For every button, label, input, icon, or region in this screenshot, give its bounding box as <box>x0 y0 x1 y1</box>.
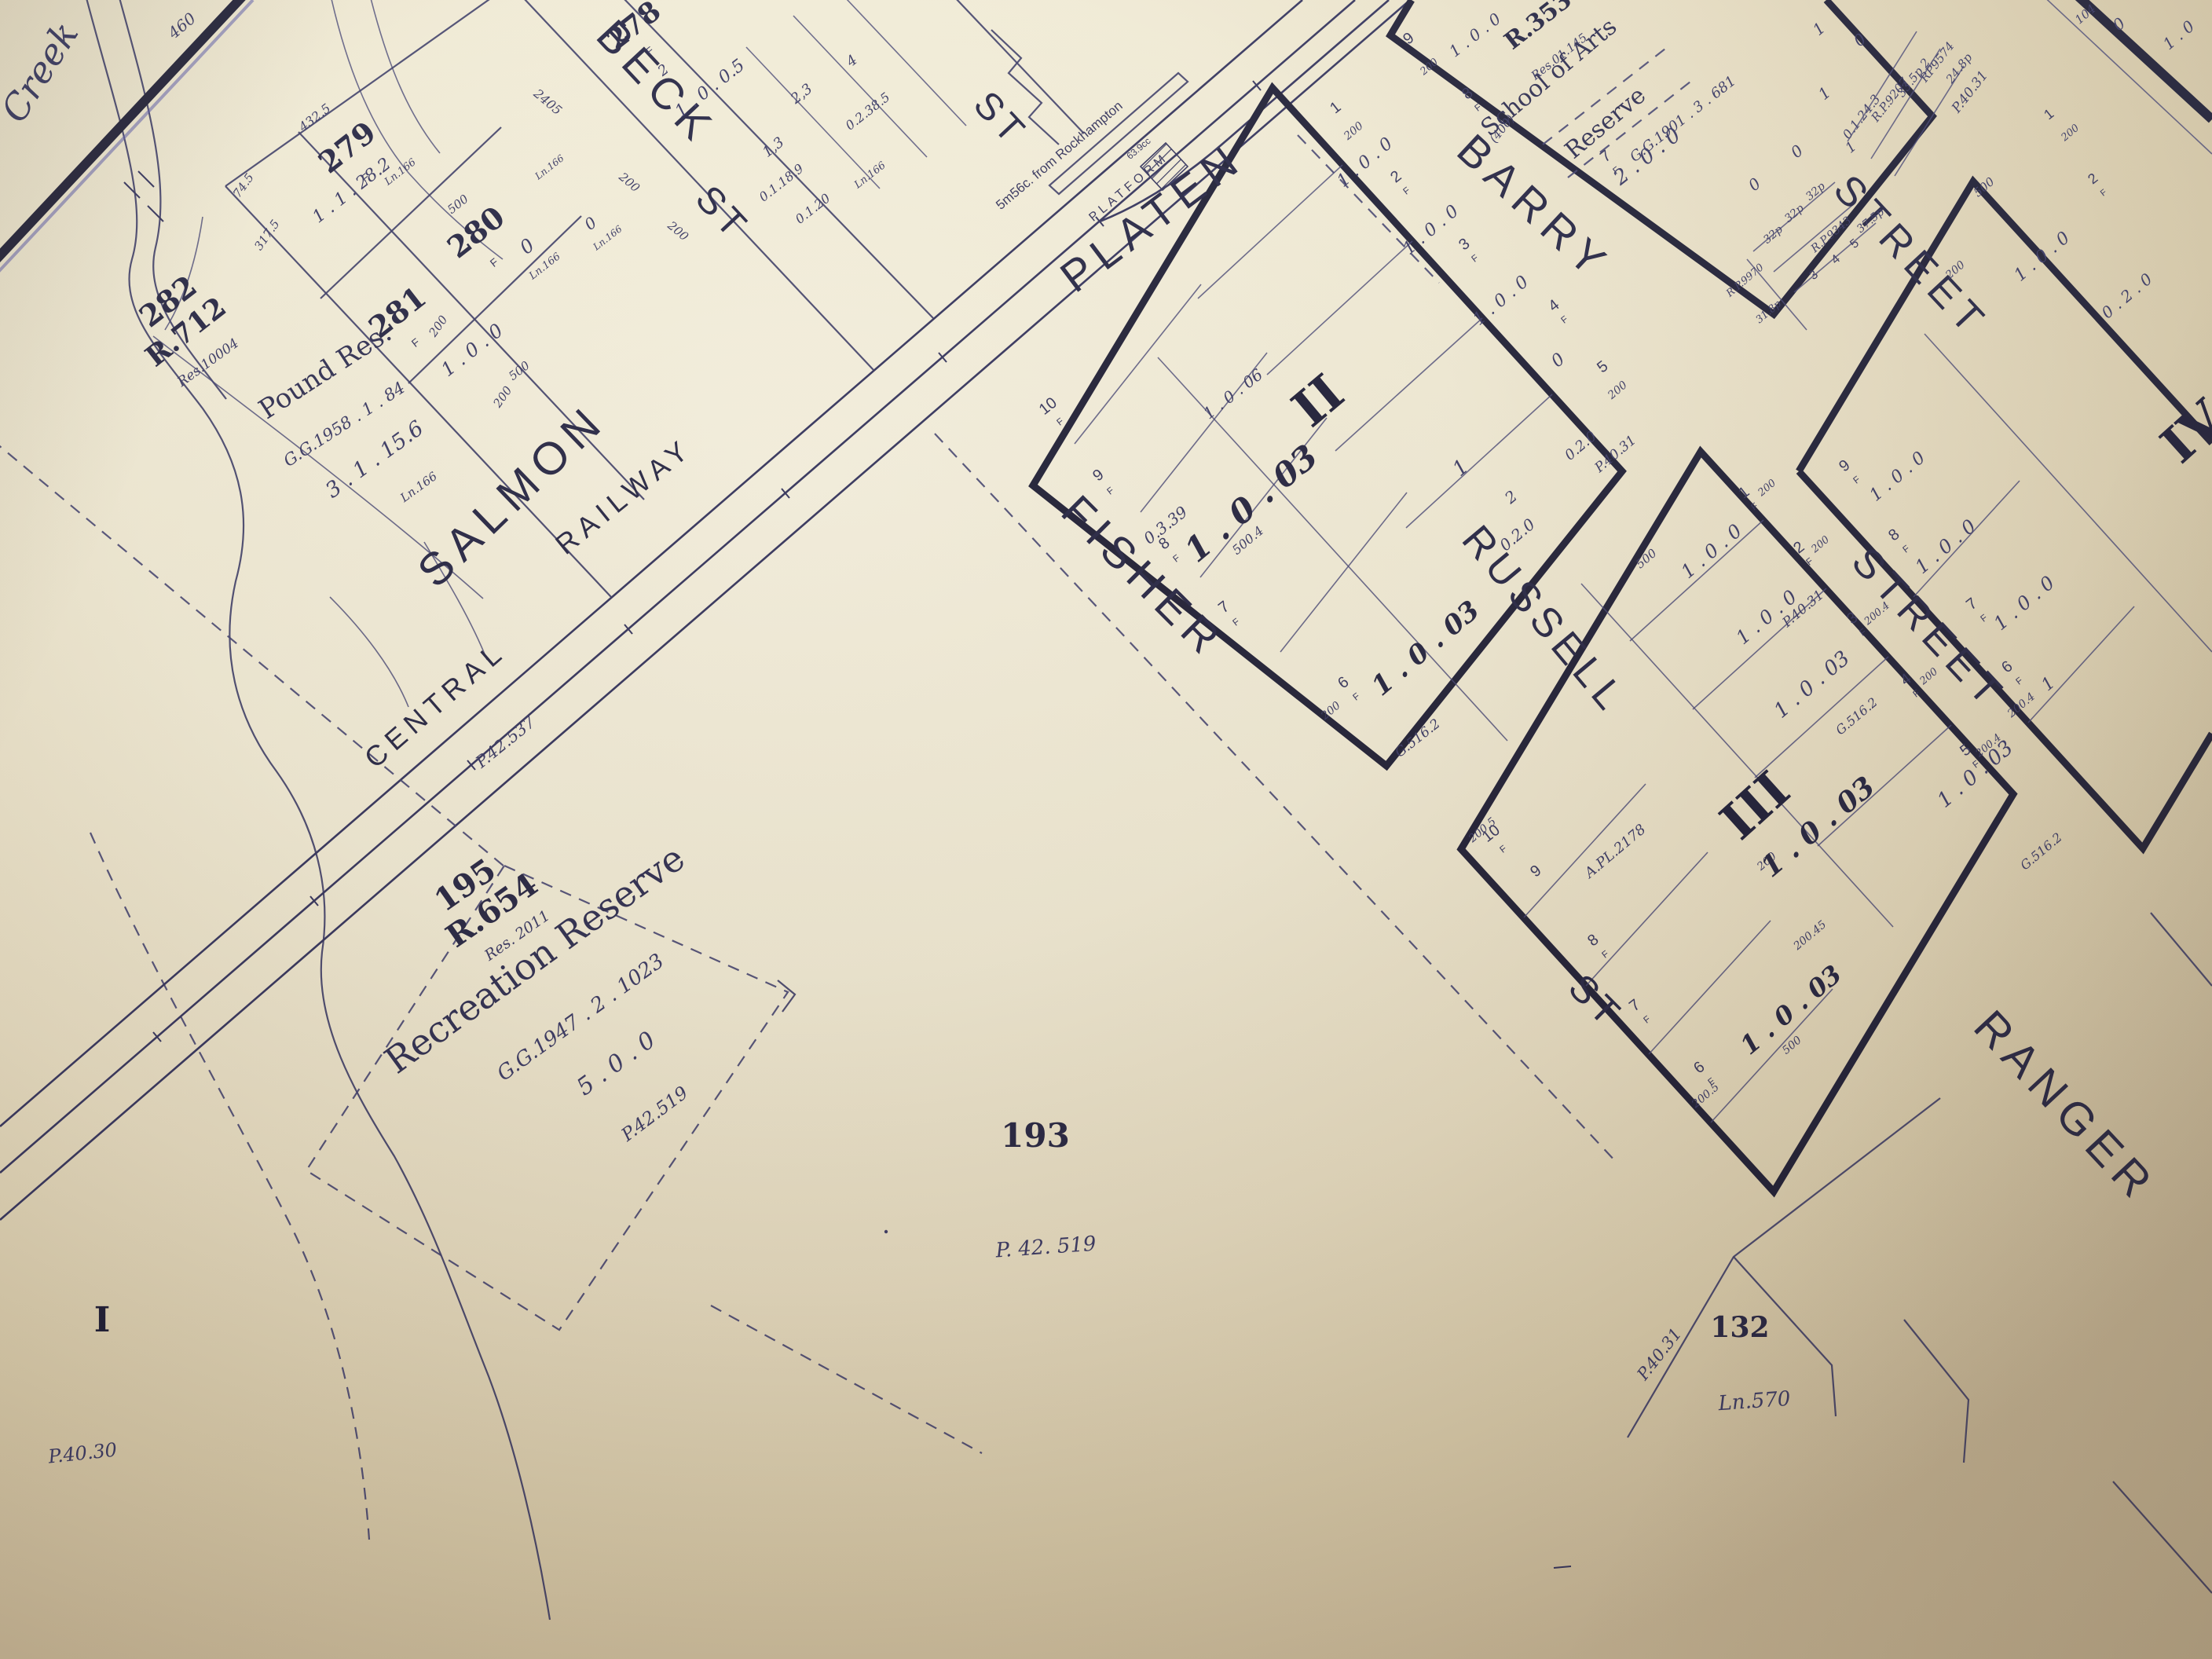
f-8-b4: F <box>1900 543 1911 555</box>
dim-500-280: 500 <box>445 192 471 217</box>
area-280: 0 <box>515 234 538 258</box>
val-r353: 2 . 0 . 0 <box>1609 123 1685 190</box>
val6-b2: 1 . 0 . 03 <box>1366 595 1486 702</box>
platform-chainage: 63.9cc <box>1124 135 1152 161</box>
lot8-b4: 8 <box>1885 526 1903 544</box>
dim-2005-b: 200.5 <box>1689 1081 1722 1111</box>
dim-200-b2-1: 200 <box>1341 119 1366 143</box>
ref-p42519-reserve: P.42.519 <box>617 1082 692 1146</box>
p32-2: 32p <box>1782 202 1807 225</box>
val2-b2: 1 . 0 . 0 <box>1400 201 1463 258</box>
val9-b4: 1 . 0 . 0 <box>1866 448 1929 505</box>
ref-p4031-block2: P.40.31 <box>1591 433 1639 477</box>
val3-b2: 1 . 0 . 0 <box>1470 272 1533 329</box>
dim-500-b3: 500 <box>1780 1034 1804 1057</box>
dim-4325: 432.5 <box>295 101 334 135</box>
lot7-b2: 7 <box>1215 598 1232 617</box>
area-0118: 0.1.18.9 <box>756 161 807 205</box>
lot9-b4: 9 <box>1836 456 1853 475</box>
val-v-5: 0 <box>1745 174 1764 195</box>
parcel-193: 193 <box>1001 1116 1070 1155</box>
street-barry-street: STREET <box>1825 167 1997 346</box>
f-9-b4: F <box>1851 474 1862 486</box>
lot1-b2: 1 <box>1327 98 1344 117</box>
dim-460: 460 <box>163 9 200 43</box>
val7-b4: 1 . 0 . 0 <box>1990 572 2059 635</box>
f-6-b4: F <box>2013 675 2024 687</box>
street-fisher: FISHER <box>1053 485 1235 668</box>
ref-p4031-132: P.40.31 <box>1633 1324 1686 1384</box>
dim-2405: 2405 <box>530 86 565 118</box>
dim-200-a: 200 <box>426 313 451 340</box>
valbig-b2: 1 . 0 . 03 <box>1177 437 1325 569</box>
lot7-b3: 7 <box>1626 996 1643 1015</box>
area-281: 1 . 0 . 0 <box>437 319 507 380</box>
area-reserve: 5 . 0 . 0 <box>572 1027 661 1102</box>
val9-r353: 1 . 0 . 0 <box>1445 9 1504 60</box>
street-st-north: ST <box>965 84 1035 155</box>
street-ranger: RANGER <box>1964 1001 2166 1213</box>
f-6-b2: F <box>1350 690 1361 703</box>
map-labels: BECKSTSTPLATENFISHERBARRYSTREETRUSSELLST… <box>0 0 2212 1468</box>
dim-200-b3-2: 200 <box>1809 534 1832 556</box>
dim-200-beck1: 200 <box>616 169 643 195</box>
street-salmon: SALMON <box>408 394 616 598</box>
dim-20045: 200.45 <box>1791 918 1829 953</box>
val-b4-b: 0 . 2 . 0 <box>2098 269 2156 323</box>
lot-23: 2,3 <box>787 81 815 108</box>
f-10-b2: F <box>1054 416 1065 428</box>
val8-b2: 1 . 0 . 06 <box>1199 364 1266 423</box>
parcel-132: 132 <box>1710 1311 1769 1344</box>
lot1-b5: 1 <box>2041 105 2056 123</box>
lot9-b3: 9 <box>1527 862 1544 881</box>
val-37: 1 <box>1842 138 1859 156</box>
lot-13: 1,3 <box>760 134 787 161</box>
numeral-i: I <box>94 1300 111 1340</box>
val-corner: 1 . 0 <box>2159 16 2199 53</box>
ln166-pound: Ln.166 <box>397 469 441 506</box>
dim-200-b2-5: 200 <box>1605 379 1630 402</box>
f-281: F <box>409 335 423 350</box>
val3-b3: 1 . 0 . 03 <box>1770 646 1855 723</box>
dim-200-beck2: 200 <box>665 218 692 244</box>
ref-ln570: Ln.570 <box>1717 1387 1792 1415</box>
lot6-b3: 6 <box>1690 1058 1708 1077</box>
lot3-b2: 3 <box>1456 235 1473 254</box>
f-7-b4: F <box>1978 612 1989 624</box>
area-02385: 0.2.38.5 <box>843 90 893 134</box>
lot5-v: 5 <box>1848 236 1862 251</box>
val1-b3: 1 . 0 . 0 <box>1677 520 1746 583</box>
dim-500-b3-top: 500 <box>1633 546 1660 571</box>
f-280: F <box>488 255 501 269</box>
f-8-b3: F <box>1599 948 1610 961</box>
dim-745: 74.5 <box>230 170 257 200</box>
numeral-iv: IV <box>2150 389 2212 475</box>
dim-200-b3-1: 200 <box>1756 478 1778 500</box>
dim-200-b: 200 <box>490 383 515 411</box>
val-v-3: 1 <box>1815 82 1834 104</box>
area-0-beck: 0 <box>580 213 600 234</box>
dim-500-281: 500 <box>506 358 533 383</box>
val5d-b2: 0.2.0 <box>1562 428 1600 464</box>
f-3-b2: F <box>1469 252 1480 265</box>
val-v-1: 1 <box>1809 18 1829 39</box>
f-7-b2: F <box>1230 616 1241 628</box>
f-7-b3: F <box>1641 1013 1652 1026</box>
street-beck-st: ST <box>687 178 757 249</box>
val-v-4: 0 <box>1787 141 1807 162</box>
f-2-b2: F <box>1401 185 1412 197</box>
lot2-b2: 2 <box>1387 167 1404 186</box>
f-10-b3: F <box>1497 843 1508 855</box>
lot9-b2: 9 <box>1090 466 1107 485</box>
apl2178: A.PL.2178 <box>1580 821 1649 882</box>
lot4-b2: 4 <box>1545 296 1562 315</box>
map-canvas: BECKSTSTPLATENFISHERBARRYSTREETRUSSELLST… <box>0 0 2212 1659</box>
dashed-boundaries <box>0 434 1618 1453</box>
lot5-b2: 5 <box>1594 357 1611 376</box>
rp9343: R.P.9343 <box>1808 214 1854 256</box>
val5b-b2: 2 <box>1500 486 1521 507</box>
g5162-c: G.516.2 <box>2017 829 2065 873</box>
val5a-b2: 1 <box>1448 455 1474 482</box>
lot2-b5: 2 <box>2085 170 2100 187</box>
lot1-b3: 1 <box>1735 483 1752 502</box>
val4-b2: 0 <box>1547 350 1569 372</box>
f-9-b2: F <box>1104 485 1115 497</box>
map-photo: BECKSTSTPLATENFISHERBARRYSTREETRUSSELLST… <box>0 0 2212 1659</box>
f-2-b5: F <box>2099 188 2109 199</box>
val8-b4: 1 . 0 . 0 <box>1911 515 1980 578</box>
lot6-b2: 6 <box>1335 673 1352 692</box>
ref-p4030: P.40.30 <box>46 1439 118 1468</box>
numeral-ii: II <box>1281 364 1355 439</box>
lot4-278: 4 <box>843 52 861 71</box>
p32-1: 32p <box>1804 180 1828 203</box>
lot8-b3: 8 <box>1584 931 1602 950</box>
creek-label: Creek <box>0 14 86 130</box>
f-8-b2: F <box>1170 552 1181 565</box>
lot3-v: 3 <box>1807 268 1821 283</box>
dim-200-b5: 200 <box>2059 123 2082 145</box>
val5c-b2: 0.2.0 <box>1496 515 1539 555</box>
f-4-b2: F <box>1558 313 1569 326</box>
lot7-r353: 7 <box>1597 147 1614 166</box>
lot4-v: 4 <box>1829 252 1843 267</box>
ln166-beck: Ln.166 <box>533 152 566 182</box>
ref-p42519-193: P. 42. 519 <box>994 1232 1097 1263</box>
dim-3175: 317.5 <box>251 217 282 253</box>
lot7-b4: 7 <box>1963 595 1980 613</box>
lot10-b2: 10 <box>1036 394 1060 419</box>
